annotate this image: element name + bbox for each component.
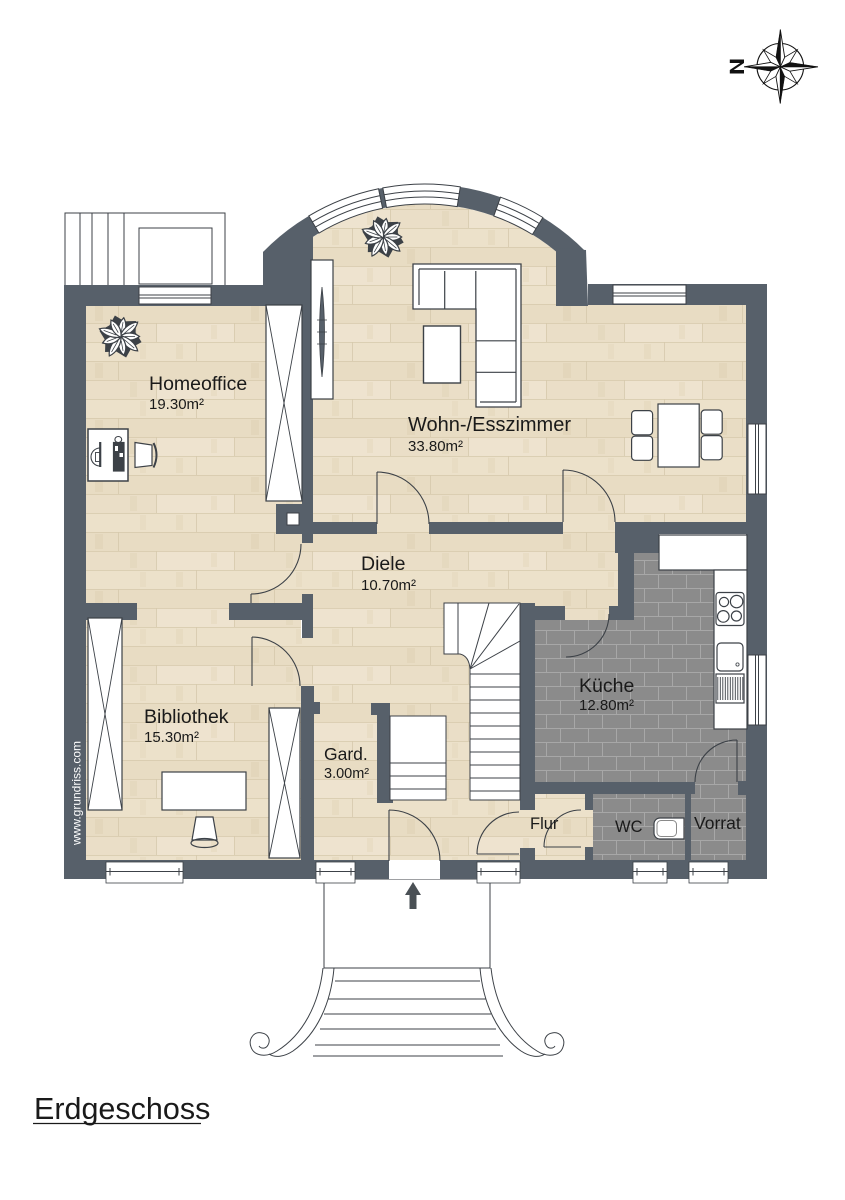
svg-text:Vorrat: Vorrat: [694, 813, 741, 833]
svg-text:Diele: Diele: [361, 553, 405, 575]
svg-text:15.30m²: 15.30m²: [144, 729, 199, 746]
svg-text:33.80m²: 33.80m²: [408, 438, 463, 455]
svg-text:Flur: Flur: [530, 815, 559, 833]
svg-text:Wohn-/Esszimmer: Wohn-/Esszimmer: [408, 414, 571, 436]
svg-text:Bibliothek: Bibliothek: [144, 706, 229, 728]
svg-text:10.70m²: 10.70m²: [361, 577, 416, 594]
svg-text:Homeoffice: Homeoffice: [149, 373, 247, 395]
svg-text:Erdgeschoss: Erdgeschoss: [34, 1092, 210, 1126]
svg-text:Küche: Küche: [579, 675, 634, 697]
svg-text:WC: WC: [615, 818, 643, 836]
svg-text:www.grundriss.com: www.grundriss.com: [70, 741, 84, 846]
svg-text:Gard.: Gard.: [324, 744, 368, 764]
svg-text:19.30m²: 19.30m²: [149, 396, 204, 413]
svg-text:12.80m²: 12.80m²: [579, 697, 634, 714]
svg-text:3.00m²: 3.00m²: [324, 766, 369, 782]
